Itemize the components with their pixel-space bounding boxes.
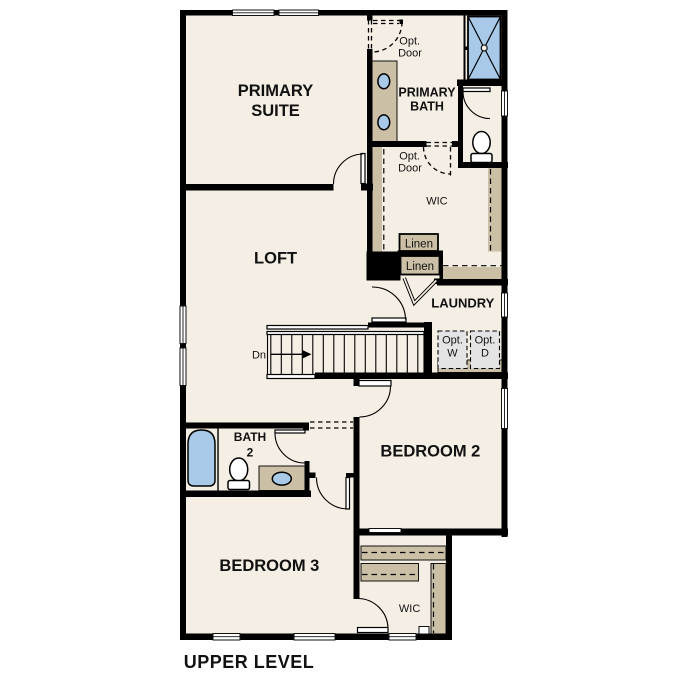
svg-text:BATH: BATH — [234, 430, 266, 444]
svg-text:D: D — [481, 348, 489, 360]
svg-text:LAUNDRY: LAUNDRY — [431, 295, 494, 310]
svg-text:Door: Door — [398, 163, 422, 175]
svg-text:BATH: BATH — [410, 100, 444, 114]
svg-text:BEDROOM 3: BEDROOM 3 — [219, 557, 319, 575]
svg-text:PRIMARY: PRIMARY — [398, 85, 456, 99]
svg-text:PRIMARY: PRIMARY — [238, 82, 313, 100]
svg-text:SUITE: SUITE — [251, 102, 300, 120]
svg-text:2: 2 — [247, 446, 254, 460]
svg-text:Opt.: Opt. — [442, 335, 463, 347]
svg-text:Opt.: Opt. — [475, 335, 496, 347]
svg-text:LOFT: LOFT — [254, 249, 297, 267]
svg-text:BEDROOM 2: BEDROOM 2 — [380, 443, 480, 461]
svg-text:Linen: Linen — [405, 239, 433, 251]
svg-text:Opt.: Opt. — [399, 36, 420, 48]
svg-text:W: W — [447, 348, 458, 360]
svg-text:Opt.: Opt. — [399, 151, 420, 163]
svg-text:Door: Door — [398, 47, 422, 59]
svg-text:UPPER LEVEL: UPPER LEVEL — [184, 652, 315, 672]
svg-text:WIC: WIC — [426, 195, 447, 207]
svg-text:WIC: WIC — [399, 603, 420, 615]
svg-text:Linen: Linen — [406, 261, 434, 273]
svg-text:Dn: Dn — [252, 349, 266, 361]
